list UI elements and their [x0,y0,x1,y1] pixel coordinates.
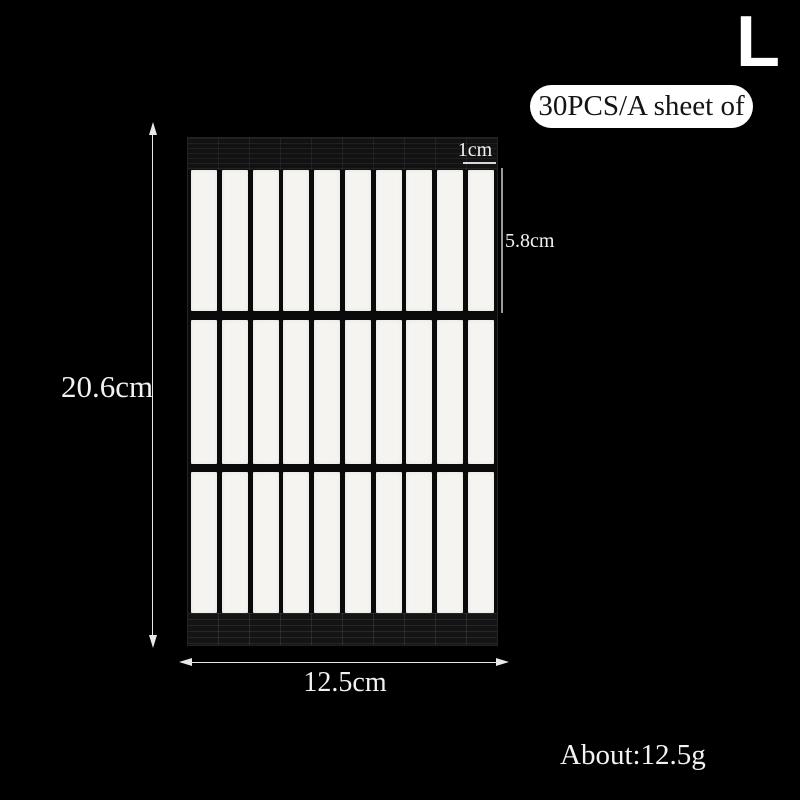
sheet-width-label: 12.5cm [253,668,437,699]
strip-rows [188,138,497,645]
sticker-strip [283,472,309,613]
sticker-strip [253,170,279,311]
strip-height-label: 5.8cm [505,230,554,252]
sticker-strip [376,170,402,311]
sticker-strip [314,472,340,613]
sticker-strip [468,320,494,464]
arrow-right-icon [496,658,509,666]
pcs-badge: 30PCS/A sheet of [530,85,753,128]
sheet-bottom-margin [188,613,497,645]
sticker-strip [345,472,371,613]
sticker-strip [437,170,463,311]
sticker-strip [253,472,279,613]
sheet-height-label: 20.6cm [54,371,160,404]
sticker-strip [468,170,494,311]
sticker-strip [345,320,371,464]
sticker-strip [222,170,248,311]
sticker-strip [406,170,432,311]
sticker-strip [191,170,217,311]
strip-row [188,472,497,613]
pcs-badge-text: 30PCS/A sheet of [538,90,744,123]
size-variant-label: L [736,6,780,78]
sticker-strip [314,320,340,464]
sticker-strip [376,320,402,464]
sticker-strip [437,320,463,464]
sheet-width-dimension-arrow [179,658,509,667]
sticker-strip [406,472,432,613]
sticker-strip [406,320,432,464]
sticker-strip [314,170,340,311]
sticker-strip [345,170,371,311]
scale-bar [463,162,496,164]
sticker-strip [437,472,463,613]
sticker-strip [191,472,217,613]
sticker-strip [376,472,402,613]
arrow-up-icon [149,122,157,135]
arrow-down-icon [149,635,157,648]
sticker-strip [191,320,217,464]
sticker-strip [283,320,309,464]
product-spec-image: L 30PCS/A sheet of 1cm 5.8cm 20.6cm 12.5… [0,0,800,800]
strip-row [188,170,497,311]
sticker-strip [222,472,248,613]
scale-label: 1cm [452,139,498,161]
weight-label: About:12.5g [560,740,706,772]
sticker-strip [253,320,279,464]
sticker-strip [283,170,309,311]
strip-height-measure-line [501,168,503,313]
strip-row [188,320,497,464]
sticker-strip [468,472,494,613]
dimension-line-horizontal [189,662,499,663]
sticker-strip [222,320,248,464]
sticker-sheet [187,137,498,646]
